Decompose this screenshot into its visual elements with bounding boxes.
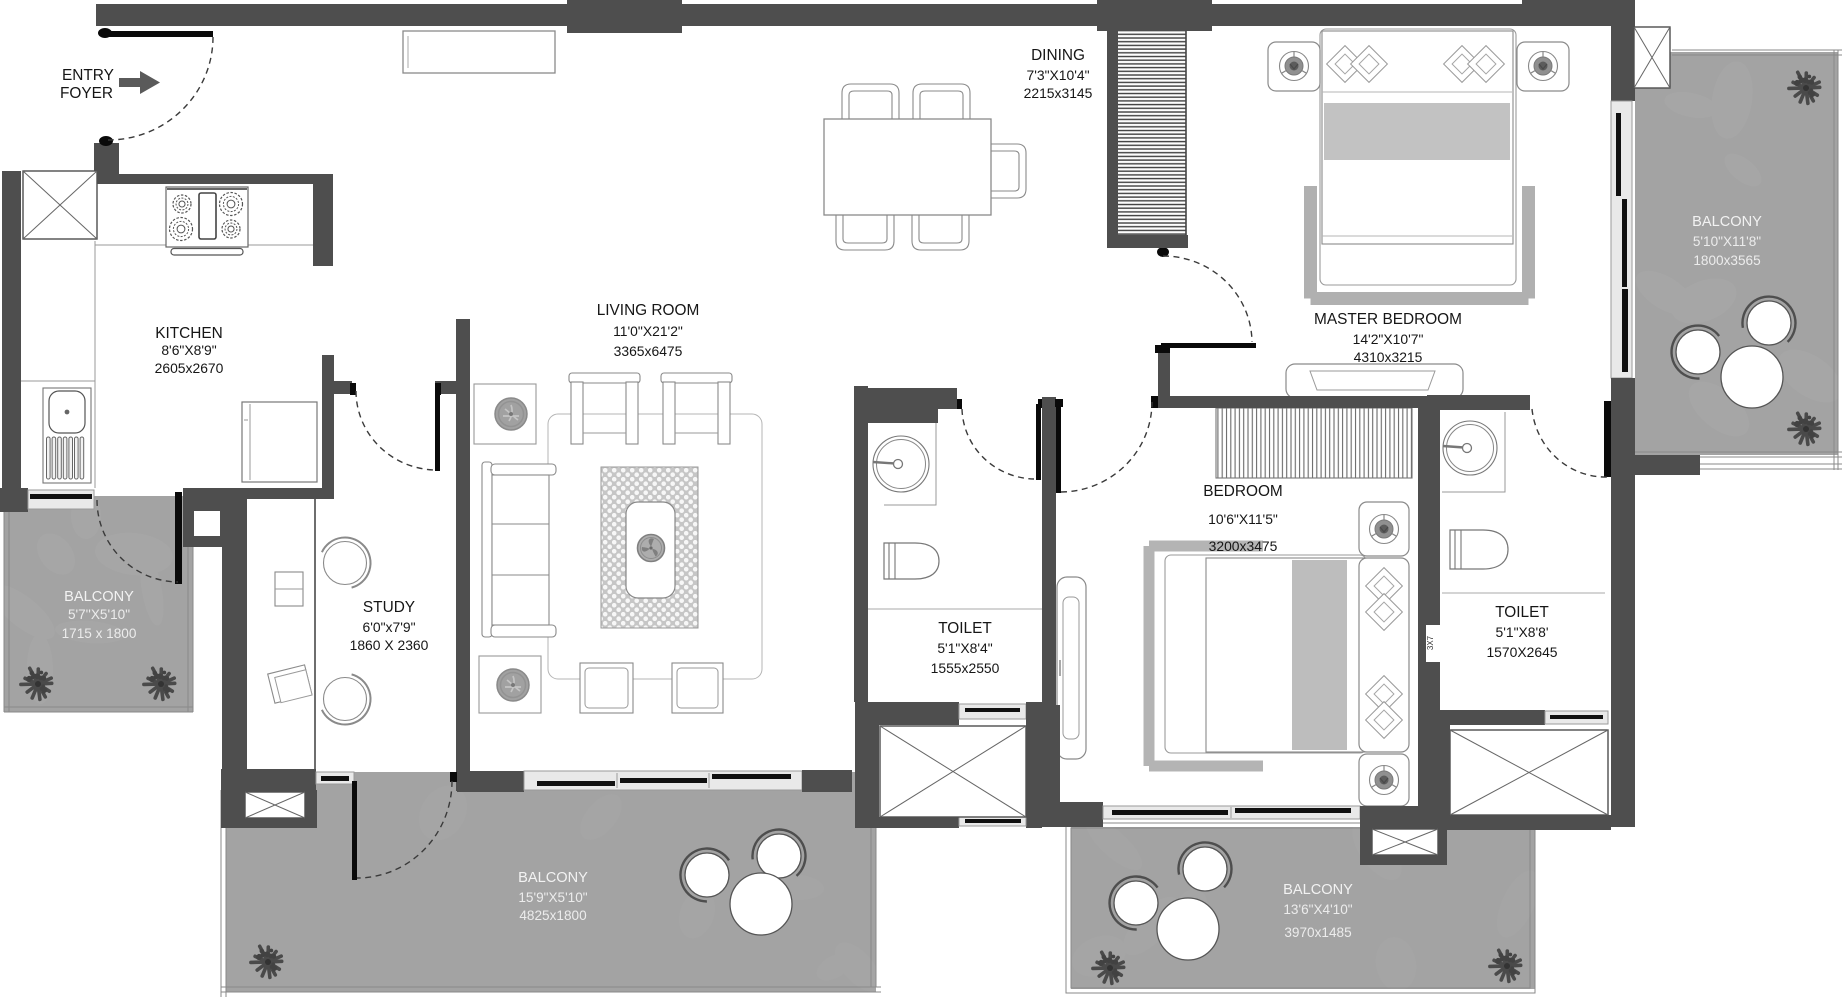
- svg-text:5'10"X11'8": 5'10"X11'8": [1693, 234, 1761, 249]
- svg-text:8'6"X8'9": 8'6"X8'9": [161, 342, 216, 358]
- svg-text:1800x3565: 1800x3565: [1693, 253, 1760, 268]
- svg-text:2215x3145: 2215x3145: [1024, 85, 1093, 101]
- svg-text:6'0"x7'9": 6'0"x7'9": [362, 619, 415, 635]
- svg-text:FOYER: FOYER: [60, 85, 113, 102]
- svg-text:BALCONY: BALCONY: [1692, 214, 1762, 230]
- svg-text:LIVING ROOM: LIVING ROOM: [597, 302, 700, 319]
- svg-text:BALCONY: BALCONY: [1283, 882, 1353, 898]
- svg-text:ENTRY: ENTRY: [62, 67, 114, 84]
- svg-text:3X7: 3X7: [1426, 635, 1435, 650]
- svg-text:3200x3475: 3200x3475: [1209, 538, 1278, 554]
- svg-text:15'9"X5'10": 15'9"X5'10": [518, 890, 587, 905]
- svg-text:1715 x 1800: 1715 x 1800: [62, 626, 137, 641]
- svg-text:14'2"X10'7": 14'2"X10'7": [1353, 331, 1424, 347]
- svg-text:STUDY: STUDY: [363, 599, 415, 616]
- svg-text:10'6"X11'5": 10'6"X11'5": [1208, 511, 1278, 527]
- svg-text:1555x2550: 1555x2550: [931, 660, 1000, 676]
- svg-text:BALCONY: BALCONY: [518, 870, 588, 886]
- svg-text:BALCONY: BALCONY: [64, 589, 134, 605]
- svg-text:3365x6475: 3365x6475: [614, 343, 683, 359]
- svg-text:KITCHEN: KITCHEN: [155, 325, 223, 342]
- svg-text:5'1"X8'8': 5'1"X8'8': [1495, 624, 1548, 640]
- svg-text:13'6"X4'10": 13'6"X4'10": [1283, 902, 1352, 917]
- svg-text:MASTER BEDROOM: MASTER BEDROOM: [1314, 311, 1462, 328]
- svg-text:DINING: DINING: [1031, 47, 1085, 64]
- svg-text:1570X2645: 1570X2645: [1486, 644, 1557, 660]
- svg-text:3970x1485: 3970x1485: [1284, 925, 1351, 940]
- svg-text:2605x2670: 2605x2670: [155, 360, 224, 376]
- svg-text:4825x1800: 4825x1800: [519, 908, 587, 923]
- svg-text:7'3"X10'4": 7'3"X10'4": [1026, 67, 1089, 83]
- svg-text:11'0"X21'2": 11'0"X21'2": [613, 323, 683, 339]
- svg-text:BEDROOM: BEDROOM: [1203, 483, 1283, 500]
- svg-text:5'7''X5'10": 5'7''X5'10": [68, 607, 130, 622]
- svg-text:1860 X 2360: 1860 X 2360: [350, 637, 429, 653]
- svg-text:TOILET: TOILET: [1495, 604, 1549, 621]
- svg-text:5'1"X8'4": 5'1"X8'4": [937, 640, 992, 656]
- svg-text:TOILET: TOILET: [938, 620, 992, 637]
- svg-text:4310x3215: 4310x3215: [1354, 349, 1423, 365]
